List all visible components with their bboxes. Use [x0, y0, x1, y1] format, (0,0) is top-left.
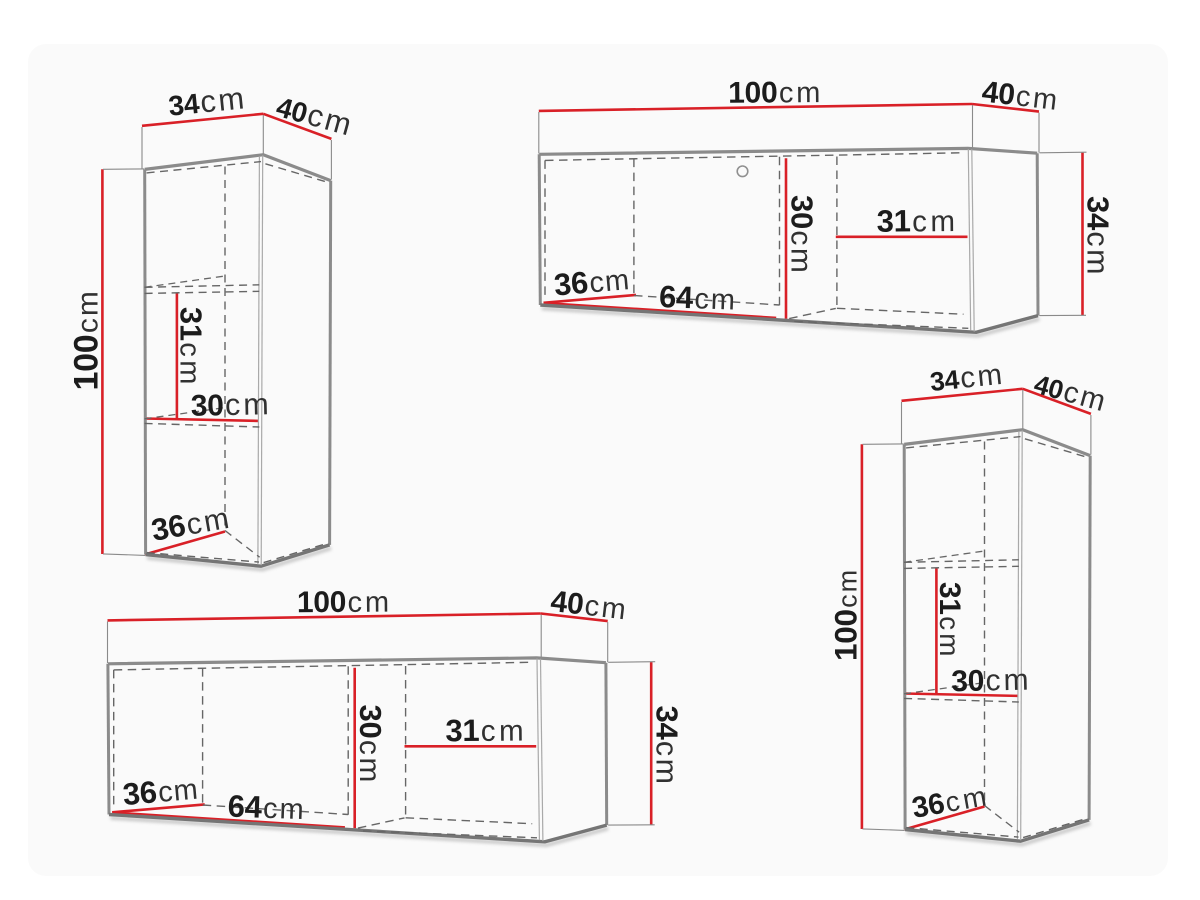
svg-text:64cm: 64cm [658, 279, 737, 317]
svg-text:100cm: 100cm [728, 76, 823, 110]
svg-text:36cm: 36cm [121, 771, 200, 812]
svg-text:30cm: 30cm [951, 664, 1032, 699]
svg-text:30cm: 30cm [784, 195, 819, 275]
svg-text:100cm: 100cm [828, 568, 864, 661]
svg-text:31cm: 31cm [933, 582, 966, 660]
svg-text:36cm: 36cm [553, 261, 632, 302]
svg-text:100cm: 100cm [68, 289, 106, 390]
svg-text:30cm: 30cm [190, 387, 272, 423]
svg-text:64cm: 64cm [227, 789, 306, 827]
svg-text:34cm: 34cm [1081, 196, 1116, 277]
svg-text:30cm: 30cm [353, 705, 388, 785]
svg-text:100cm: 100cm [297, 586, 392, 620]
svg-text:34cm: 34cm [649, 706, 684, 787]
svg-text:31cm: 31cm [445, 712, 527, 748]
svg-text:31cm: 31cm [174, 307, 209, 388]
svg-text:31cm: 31cm [877, 203, 959, 239]
